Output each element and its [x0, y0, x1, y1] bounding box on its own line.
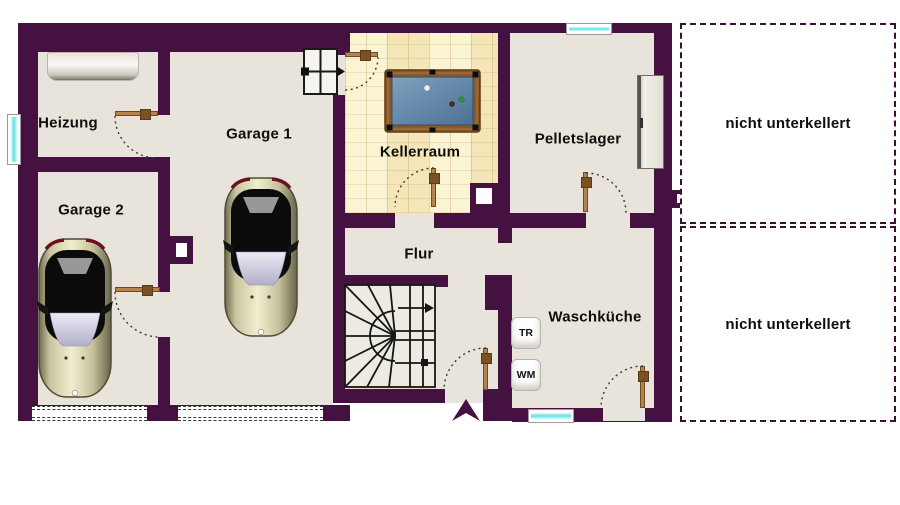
wall-segment	[158, 52, 170, 405]
boiler-icon	[47, 52, 139, 81]
room-label-flur: Flur	[404, 246, 433, 263]
door-leaf-icon	[115, 111, 158, 116]
wall-segment	[18, 23, 350, 52]
dryer-box: TR	[511, 317, 541, 349]
room-label-pelletslager: Pelletslager	[535, 131, 622, 148]
door-leaf-icon	[115, 287, 160, 292]
washer-box: WM	[511, 359, 541, 391]
window-glass	[569, 27, 609, 31]
no-basement-area-top: nicht unterkellert	[680, 23, 896, 224]
wall-segment	[18, 157, 170, 172]
door-leaf-icon	[345, 52, 378, 57]
garage1-floor	[170, 52, 333, 405]
room-label-garage2: Garage 2	[58, 202, 124, 219]
no-basement-area-bottom: nicht unterkellert	[680, 226, 896, 422]
doorway	[158, 115, 170, 157]
area-label: nicht unterkellert	[725, 115, 850, 132]
door-leaf-icon	[483, 348, 488, 390]
window-glass	[531, 413, 571, 419]
door-leaf-icon	[640, 366, 645, 408]
doorway	[603, 408, 645, 421]
doorway	[158, 292, 170, 337]
wall-segment	[333, 275, 448, 287]
washer-label: WM	[517, 369, 536, 381]
cabinet-icon	[637, 75, 664, 169]
dryer-label: TR	[519, 327, 533, 339]
room-label-kellerraum: Kellerraum	[380, 144, 460, 161]
window-glass	[11, 117, 17, 162]
chimney-icon	[474, 187, 494, 207]
doorway	[586, 213, 630, 228]
doorway	[498, 243, 512, 275]
window-icon	[7, 114, 21, 165]
window-icon	[528, 409, 574, 423]
room-label-heizung: Heizung	[38, 115, 98, 132]
door-leaf-icon	[583, 172, 588, 212]
doorway	[333, 55, 345, 95]
wall-segment	[485, 275, 498, 310]
entrance-doorway	[445, 389, 483, 403]
wall-segment	[345, 23, 672, 33]
garage-door-icon	[32, 406, 147, 421]
door-leaf-icon	[431, 168, 436, 207]
window-icon	[566, 23, 612, 35]
room-label-waschkueche: Waschküche	[548, 309, 641, 326]
basement-floor-plan: TR WM	[0, 0, 900, 505]
room-label-garage1: Garage 1	[226, 126, 292, 143]
doorway	[395, 213, 434, 228]
wall-segment	[333, 389, 448, 403]
wall-segment	[18, 23, 38, 420]
chimney-icon	[170, 236, 193, 264]
garage-door-icon	[178, 406, 323, 421]
area-label: nicht unterkellert	[725, 316, 850, 333]
